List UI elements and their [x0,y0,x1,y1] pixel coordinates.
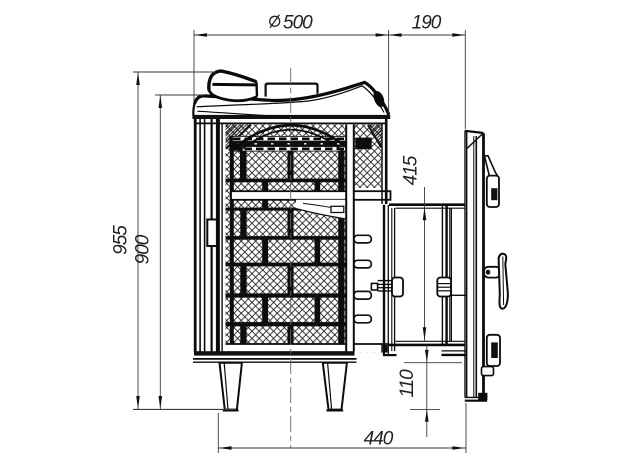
svg-text:110: 110 [397,369,418,398]
svg-text:500: 500 [283,12,313,33]
svg-text:900: 900 [133,234,154,264]
svg-text:190: 190 [412,12,442,33]
svg-text:415: 415 [401,155,422,185]
svg-text:440: 440 [364,428,394,449]
svg-text:955: 955 [111,225,132,255]
